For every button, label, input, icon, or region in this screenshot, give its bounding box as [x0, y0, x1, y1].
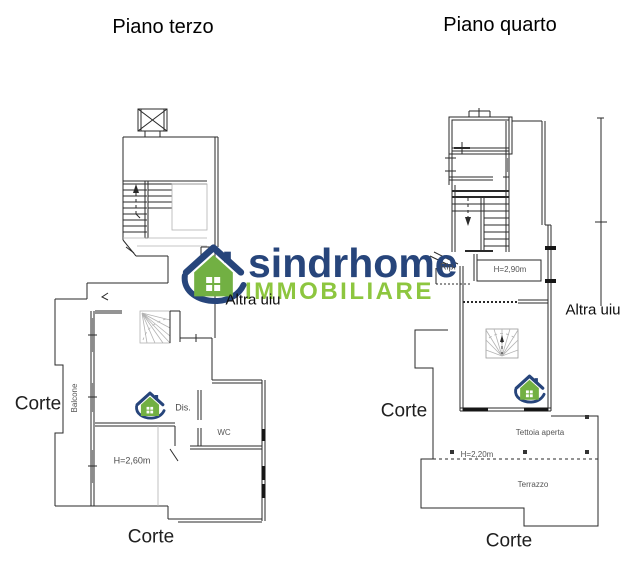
label-rip: Rip.	[440, 263, 456, 272]
sindrhome-house-icon-terzo	[134, 390, 166, 420]
stairs-icon-quarto	[452, 185, 509, 252]
label-terrazzo: Terrazzo	[518, 481, 549, 489]
label-corte-left-quarto: Corte	[381, 402, 427, 421]
sindrhome-house-icon-quarto	[513, 373, 546, 404]
plan-terzo-drawing	[55, 109, 265, 522]
plan-terzo-title: Piano terzo	[112, 17, 213, 37]
label-height-terzo: H=2,60m	[114, 457, 151, 466]
plan-quarto-title: Piano quarto	[443, 15, 556, 35]
label-dis: Dis.	[175, 404, 191, 413]
label-height-tettoia: H=2,20m	[461, 451, 494, 459]
floorplan-image: sindrhome IMMOBILIARE Piano terzo Piano …	[0, 0, 643, 572]
label-corte-bottom-terzo: Corte	[128, 528, 174, 547]
elevator-icon	[138, 109, 167, 137]
label-altra-uiu-quarto: Altra uiu	[565, 303, 620, 318]
label-corte-bottom-quarto: Corte	[486, 532, 532, 551]
label-tettoia-aperta: Tettoia aperta	[516, 429, 564, 437]
label-height-rip: H=2,90m	[494, 266, 527, 274]
label-corte-left-terzo: Corte	[15, 395, 61, 414]
label-wc: WC	[217, 429, 230, 437]
label-balcone: Balcone	[71, 384, 79, 413]
winder-stairs-icon-quarto	[486, 329, 518, 358]
winder-stairs-icon-terzo	[140, 311, 170, 343]
label-altra-uiu-terzo: Altra uiu	[225, 293, 280, 308]
stairs-icon-terzo	[123, 181, 207, 246]
